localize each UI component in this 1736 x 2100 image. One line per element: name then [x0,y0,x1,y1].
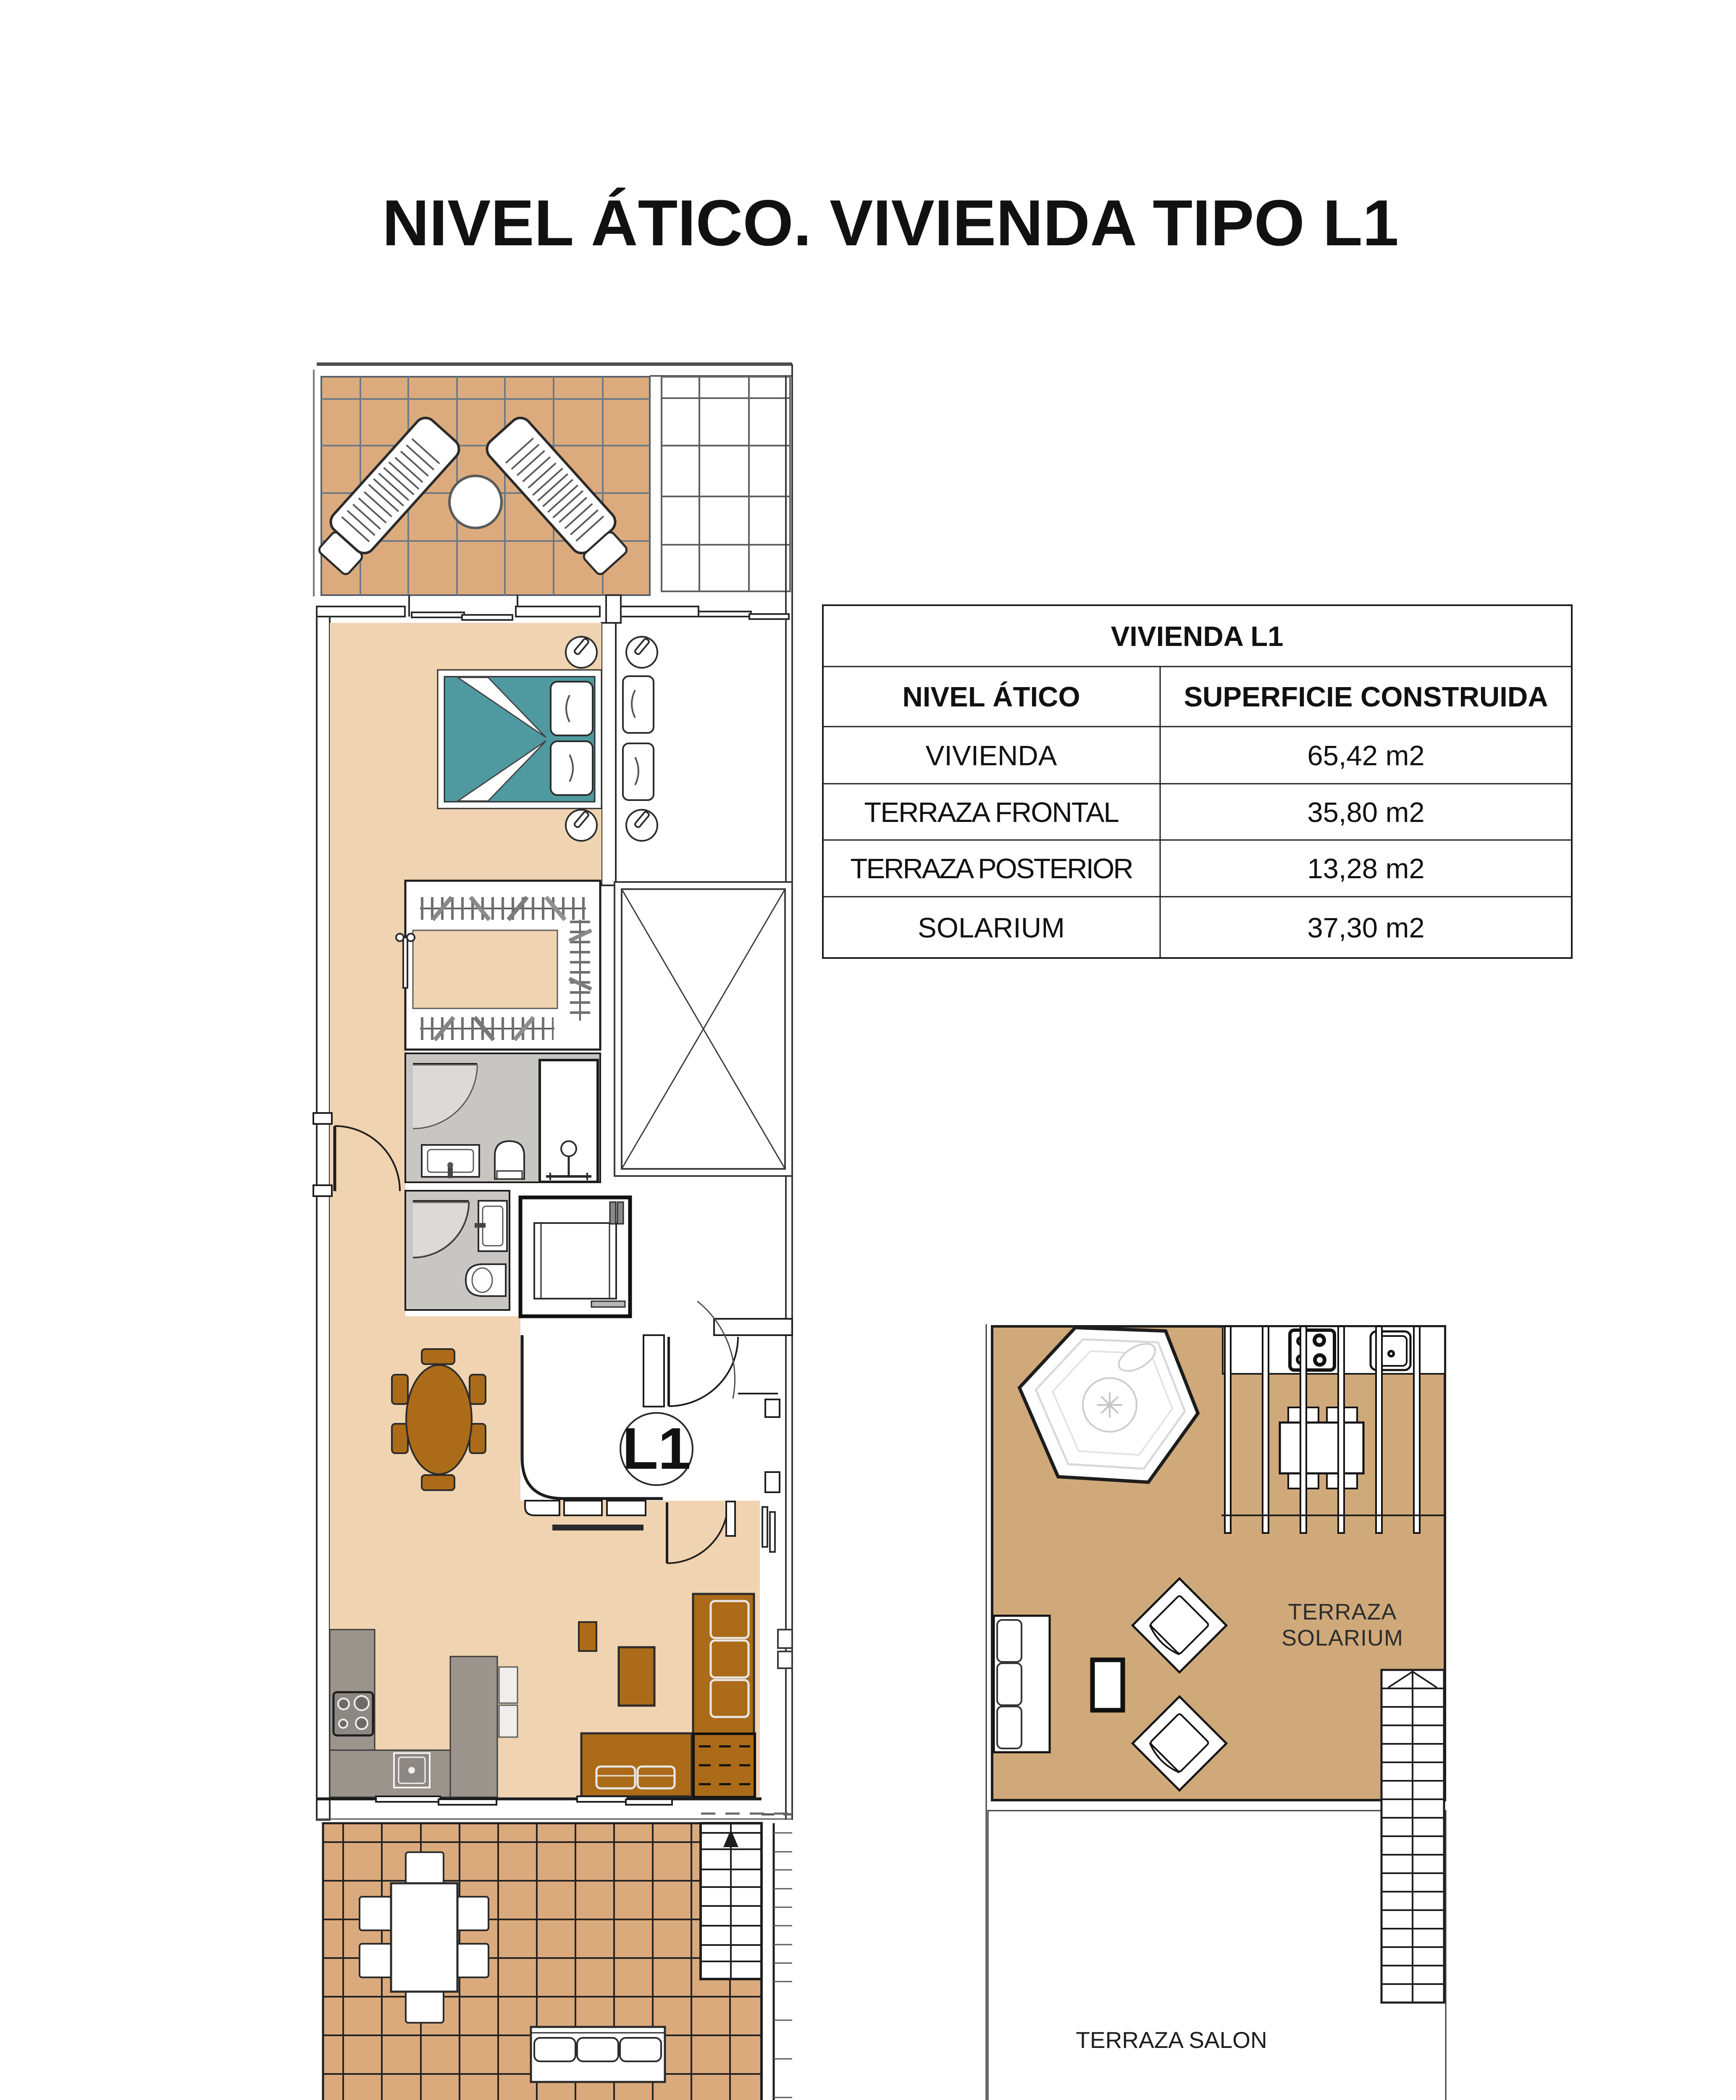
svg-text:13,28 m2: 13,28 m2 [1307,853,1424,885]
svg-text:65,42 m2: 65,42 m2 [1307,740,1424,772]
svg-text:SOLARIUM: SOLARIUM [1282,1625,1403,1651]
svg-text:TERRAZA SALON: TERRAZA SALON [1076,2027,1267,2053]
svg-text:L1: L1 [622,1415,691,1481]
svg-text:NIVEL ÁTICO. VIVIENDA TIPO L1: NIVEL ÁTICO. VIVIENDA TIPO L1 [382,186,1399,259]
svg-text:VIVIENDA: VIVIENDA [926,740,1057,772]
svg-text:35,80 m2: 35,80 m2 [1307,797,1424,828]
svg-text:TERRAZA: TERRAZA [1288,1599,1397,1625]
svg-text:SOLARIUM: SOLARIUM [918,912,1065,944]
svg-text:NIVEL ÁTICO: NIVEL ÁTICO [902,681,1080,713]
svg-text:37,30 m2: 37,30 m2 [1307,912,1424,944]
svg-text:SUPERFICIE CONSTRUIDA: SUPERFICIE CONSTRUIDA [1184,681,1548,713]
svg-text:VIVIENDA L1: VIVIENDA L1 [1111,621,1284,652]
svg-text:TERRAZA FRONTAL: TERRAZA FRONTAL [864,797,1119,828]
svg-text:TERRAZA POSTERIOR: TERRAZA POSTERIOR [850,853,1132,885]
